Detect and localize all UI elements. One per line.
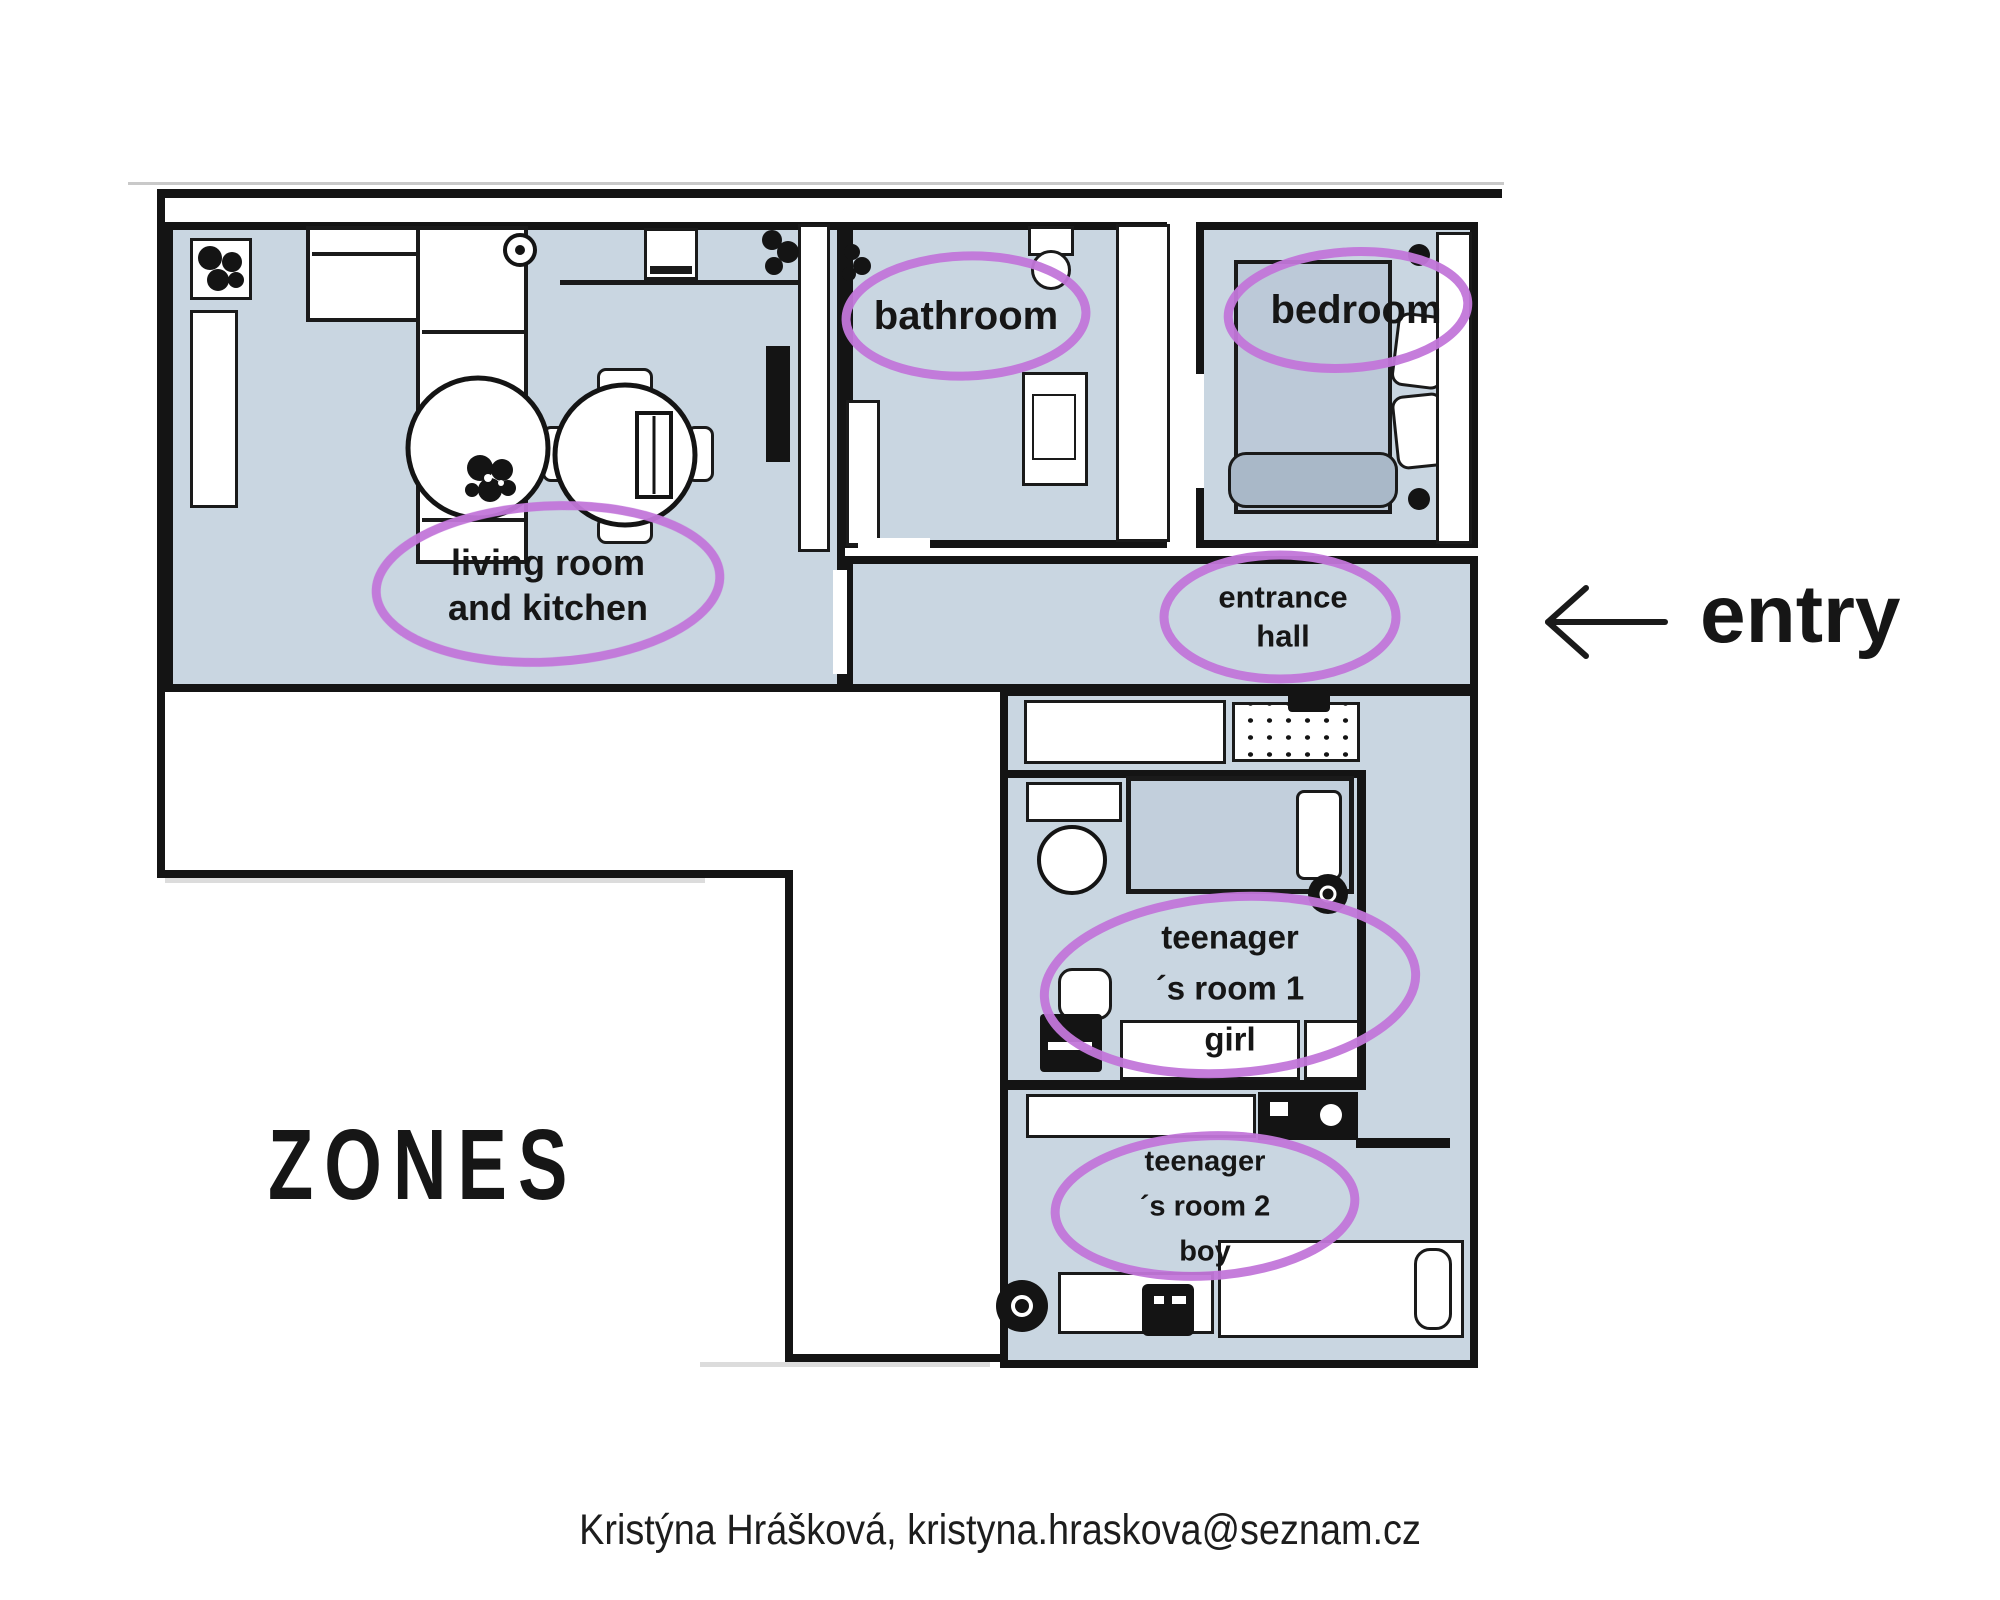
sink-basin xyxy=(1032,394,1076,460)
teen-room1-label-line3: girl xyxy=(1156,1014,1305,1065)
divider-black-unit xyxy=(1258,1092,1358,1140)
girl-shelf xyxy=(1026,782,1122,822)
teen-room1-label: teenager ´s room 1 girl xyxy=(1156,911,1305,1064)
entry-annotation: entry xyxy=(1700,568,1901,662)
sideboard xyxy=(190,310,238,508)
dining-chair-left xyxy=(542,426,570,482)
hall-wardrobe xyxy=(1024,700,1226,764)
floor-plan-page: living room and kitchen bathroom bedroom… xyxy=(0,0,2000,1600)
bathtub xyxy=(846,400,880,546)
kitchen-counter-line xyxy=(560,280,806,285)
sofa-cushion-seam-1 xyxy=(422,330,524,334)
teen-room1-label-line2: ´s room 1 xyxy=(1156,962,1305,1013)
plan-top-border xyxy=(157,189,1502,198)
living-room-label: living room and kitchen xyxy=(448,540,648,630)
teen-room2-label-line1: teenager xyxy=(1140,1140,1271,1185)
rooms-divider-wall xyxy=(1008,1080,1366,1090)
boy-bed-pillow xyxy=(1414,1248,1452,1330)
toilet-bowl xyxy=(1031,250,1071,290)
bathroom-door-opening xyxy=(858,538,930,550)
living-room-label-line1: living room xyxy=(448,540,648,585)
teen-room2-label-line2: ´s room 2 xyxy=(1140,1185,1271,1230)
sofa-cushion-seam-3 xyxy=(422,518,524,522)
hall-fan-unit xyxy=(1288,690,1330,712)
divider-desk xyxy=(1026,1094,1256,1138)
boy-chair xyxy=(1142,1284,1194,1336)
living-room-label-line2: and kitchen xyxy=(448,585,648,630)
girl-bed-pillow xyxy=(1296,790,1342,880)
stove-edge xyxy=(650,266,692,274)
entrance-hall-label-line2: hall xyxy=(1218,617,1347,656)
entry-text: entry xyxy=(1700,569,1901,660)
girl-side-table xyxy=(1304,1020,1360,1080)
divider-unit-wheel xyxy=(1320,1104,1342,1126)
zones-text: ZONES xyxy=(268,1109,578,1221)
kitchen-tall-cabinet xyxy=(798,224,830,552)
sofa-cushion-seam-2 xyxy=(422,442,524,446)
tv-unit xyxy=(766,346,790,462)
band-shadow xyxy=(165,878,705,883)
boy-chair-detail-2 xyxy=(1172,1296,1186,1304)
bedroom-knob-bottom xyxy=(1408,488,1430,510)
girl-pc-slot xyxy=(1048,1042,1092,1050)
divider-unit-detail xyxy=(1270,1102,1288,1116)
bedroom-door-opening xyxy=(1192,374,1204,488)
band-column-left-wall xyxy=(785,870,793,1362)
top-shadow-line xyxy=(128,182,1504,185)
bedroom-label-text: bedroom xyxy=(1270,286,1441,334)
teen-room1-label-line1: teenager xyxy=(1156,911,1305,962)
bathroom-label-text: bathroom xyxy=(874,292,1058,340)
entry-arrow-icon xyxy=(1548,588,1665,656)
band-column-bottom-wall xyxy=(785,1354,1008,1362)
band-bottom-wall xyxy=(157,870,793,878)
entrance-hall-area xyxy=(845,556,1478,692)
entrance-hall-label-line1: entrance xyxy=(1218,578,1347,617)
boy-chair-detail-1 xyxy=(1154,1296,1164,1304)
footer-credit-text: Kristýna Hrášková, kristyna.hraskova@sez… xyxy=(579,1506,1421,1554)
bed-blanket-roll xyxy=(1228,452,1398,508)
boy-room-wall-stub xyxy=(1356,1138,1450,1148)
living-room-door-opening xyxy=(833,570,847,674)
dining-chair-top xyxy=(597,368,653,396)
zones-title: ZONES xyxy=(268,1108,578,1223)
footer-credit: Kristýna Hrášková, kristyna.hraskova@sez… xyxy=(120,1506,1880,1555)
dining-chair-right xyxy=(686,426,714,482)
plan-left-border xyxy=(157,196,165,878)
bedroom-label: bedroom xyxy=(1270,286,1441,334)
entrance-hall-label: entrance hall xyxy=(1218,578,1347,656)
teen-room2-label: teenager ´s room 2 boy xyxy=(1140,1140,1271,1275)
plant-stand xyxy=(190,238,252,300)
sofa-chaise-section xyxy=(416,226,528,564)
teen-room2-label-line3: boy xyxy=(1140,1229,1271,1274)
shower-column xyxy=(1116,224,1170,542)
girl-chair xyxy=(1058,968,1112,1020)
bedroom-knob-top xyxy=(1408,244,1430,266)
bathroom-label: bathroom xyxy=(874,292,1058,340)
bedroom-wardrobe xyxy=(1436,232,1472,544)
column-shadow xyxy=(700,1362,990,1367)
